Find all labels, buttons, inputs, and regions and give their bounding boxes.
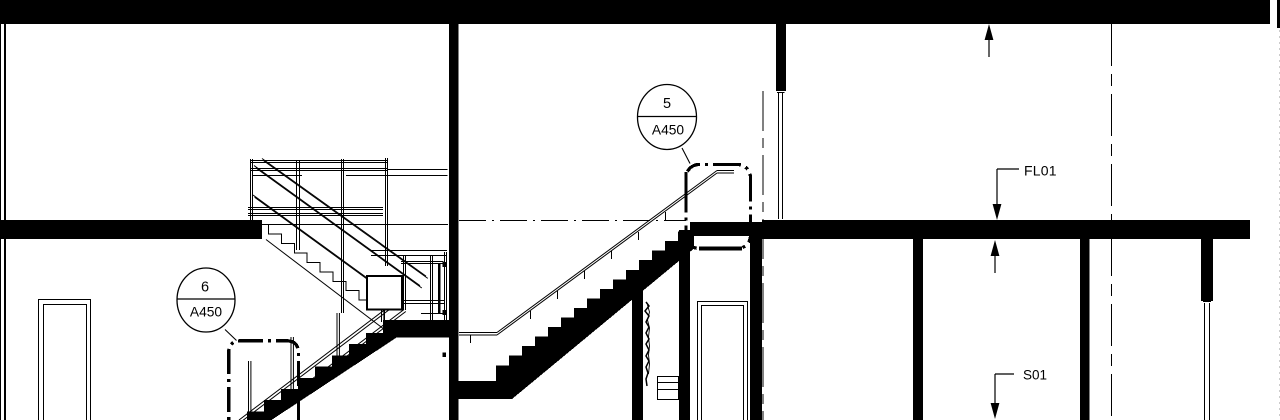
svg-text:FL01: FL01 <box>1024 163 1057 179</box>
svg-text:6: 6 <box>201 280 209 296</box>
svg-text:5: 5 <box>663 96 671 112</box>
svg-text:A450: A450 <box>190 305 223 320</box>
svg-text:A450: A450 <box>652 123 685 138</box>
svg-text:S01: S01 <box>1023 368 1047 383</box>
